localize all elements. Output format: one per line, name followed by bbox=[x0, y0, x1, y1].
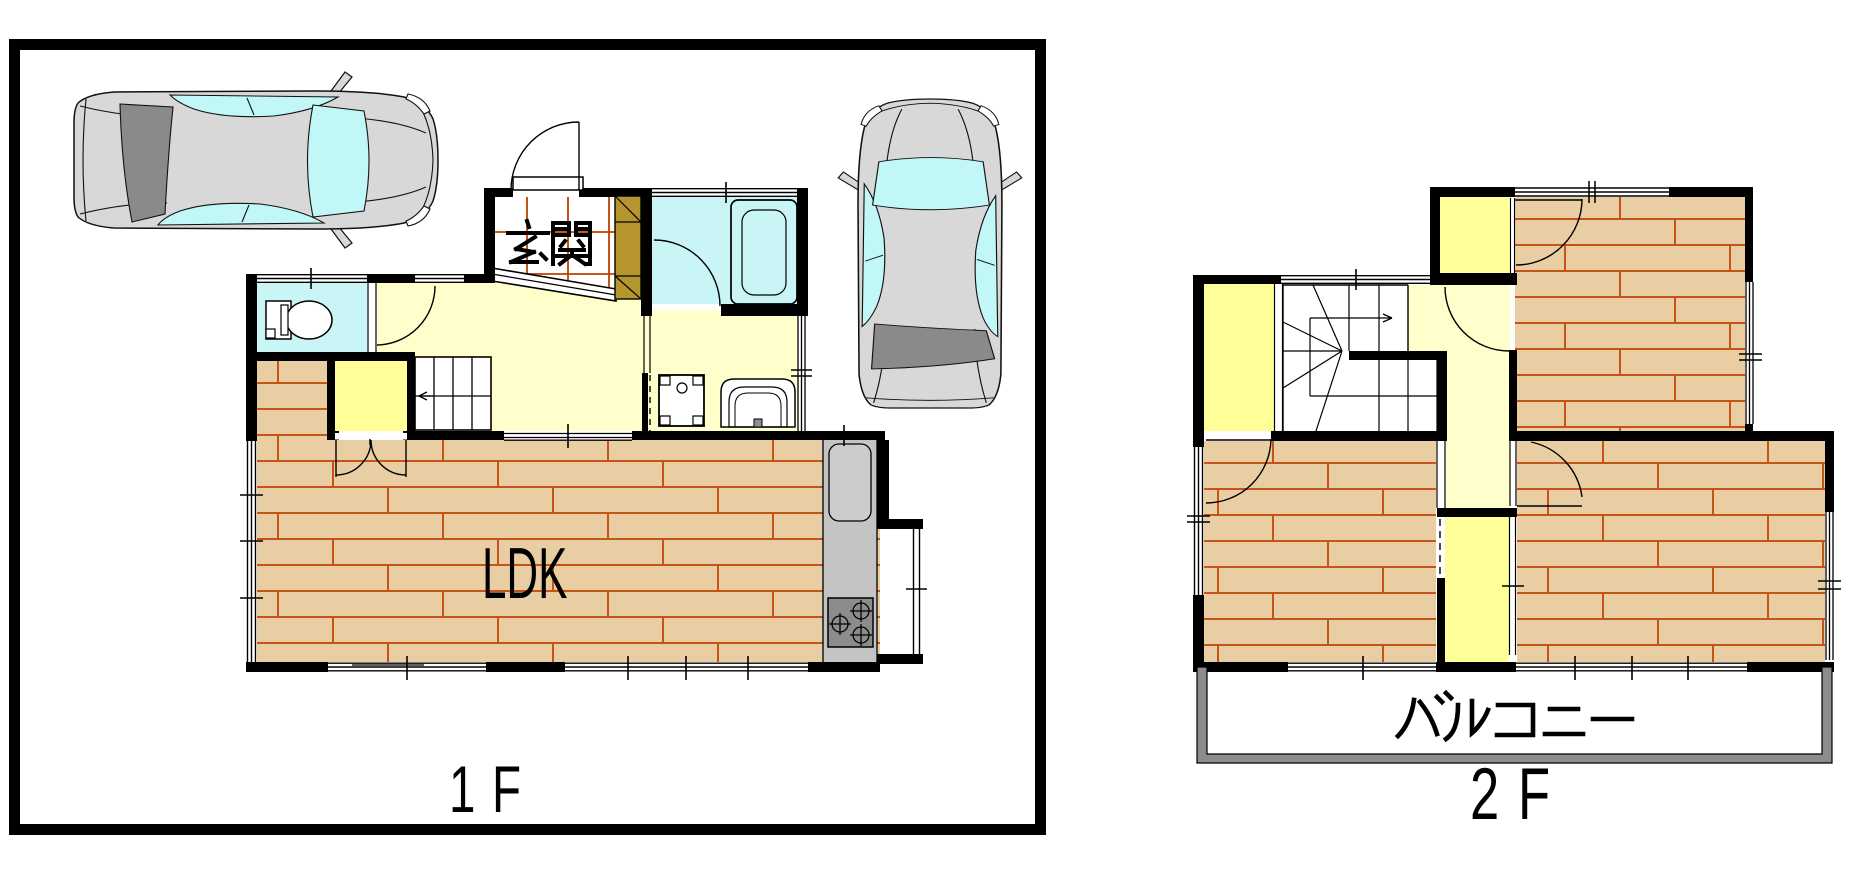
svg-text:F: F bbox=[1518, 754, 1550, 835]
svg-text:2: 2 bbox=[1470, 754, 1499, 835]
svg-text:LDK: LDK bbox=[482, 533, 568, 614]
svg-text:F: F bbox=[492, 753, 521, 826]
svg-text:1: 1 bbox=[449, 753, 475, 826]
